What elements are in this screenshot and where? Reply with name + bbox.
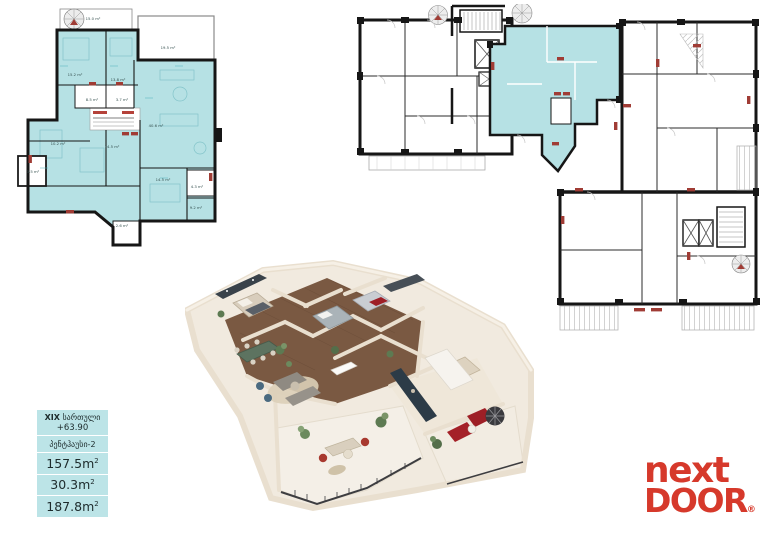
- unit-floor-plan-2d: 15.0 m²15.2 m²13.8 m²19.5 m²40.6 m²8.5 m…: [10, 8, 232, 248]
- unit-type-label: პენტჰაუსი-2: [37, 440, 108, 449]
- apartment-3d-render[interactable]: [185, 258, 555, 526]
- nextdoor-logo: next DOOR®: [644, 456, 764, 515]
- inner-area-row: 157.5m2: [37, 452, 108, 473]
- inner-area-value: 157.5m2: [37, 456, 108, 471]
- total-area-value: 187.8m2: [37, 499, 108, 514]
- floor-label: XIX სართული: [37, 412, 108, 423]
- balcony-area-row: 30.3m2: [37, 474, 108, 495]
- stairwell: [60, 9, 132, 30]
- unit-floor-plan-drawing: [10, 8, 232, 248]
- balcony-strip: [369, 156, 485, 170]
- unit-type-row: პენტჰაუსი-2: [37, 435, 108, 452]
- registered-mark: ®: [747, 505, 756, 515]
- floor-row: XIX სართული +63.90: [37, 410, 108, 435]
- balcony-area-value: 30.3m2: [37, 477, 108, 492]
- plan-legend-box: [90, 108, 140, 130]
- total-area-row: 187.8m2: [37, 495, 108, 517]
- logo-word-door: DOOR®: [644, 487, 764, 515]
- elevation-label: +63.90: [37, 423, 108, 433]
- brochure-page: 15.0 m²15.2 m²13.8 m²19.5 m²40.6 m²8.5 m…: [0, 0, 768, 536]
- unit-info-card: XIX სართული +63.90 პენტჰაუსი-2 157.5m2 3…: [37, 410, 108, 517]
- spiral-stair-3d: [486, 407, 505, 426]
- terrace: [138, 16, 214, 60]
- apartment-3d-drawing: [185, 258, 555, 526]
